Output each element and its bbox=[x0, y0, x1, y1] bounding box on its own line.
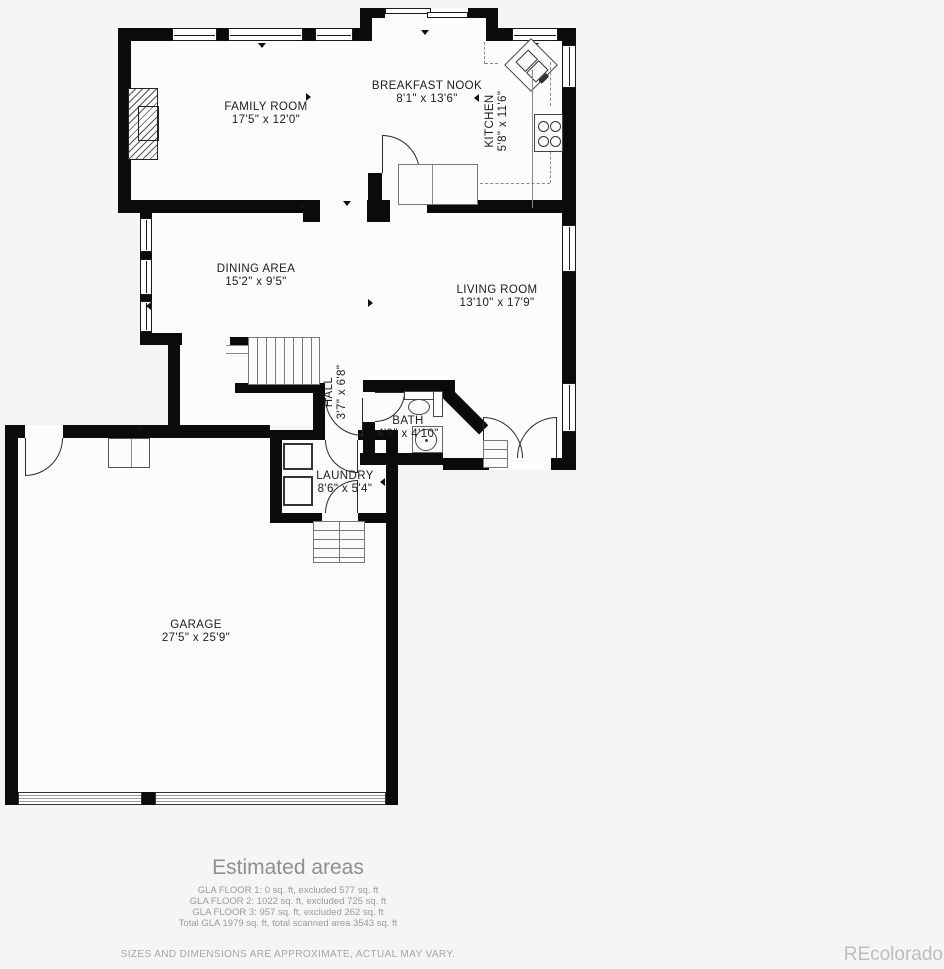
room-label-laundry: LAUNDRY 8'6" x 5'4" bbox=[316, 470, 374, 496]
window bbox=[140, 218, 152, 252]
burner bbox=[550, 136, 561, 147]
wall bbox=[118, 200, 303, 213]
wall bbox=[303, 28, 315, 41]
garage-door bbox=[18, 792, 142, 805]
wall bbox=[217, 28, 228, 41]
dimension-tick bbox=[306, 93, 311, 101]
fireplace bbox=[128, 88, 158, 160]
wall bbox=[372, 8, 385, 18]
front-entry-steps bbox=[483, 440, 508, 468]
dimension-tick bbox=[421, 30, 429, 35]
gla-total: Total GLA 1979 sq. ft, total scanned are… bbox=[38, 918, 538, 929]
wall bbox=[270, 438, 282, 523]
upper-cabinet-dashed bbox=[550, 62, 551, 106]
dimension-tick bbox=[146, 302, 151, 310]
fireplace-firebox bbox=[138, 106, 159, 141]
room-name: FAMILY ROOM bbox=[224, 101, 307, 114]
dimension-tick bbox=[343, 201, 351, 206]
counter-edge bbox=[532, 70, 533, 208]
room-name: HALL bbox=[323, 365, 336, 420]
room-label-bath: BATH 4'9" x 4'10" bbox=[377, 415, 438, 441]
room-label-dining-area: DINING AREA 15'2" x 9'5" bbox=[217, 263, 296, 289]
dimension-tick bbox=[299, 203, 307, 208]
room-label-living-room: LIVING ROOM 13'10" x 17'9" bbox=[456, 284, 537, 310]
wall bbox=[386, 790, 398, 805]
sliding-door-panel bbox=[427, 12, 468, 18]
garage-door bbox=[155, 792, 386, 805]
stairs bbox=[248, 337, 320, 385]
room-dims: 13'10" x 17'9" bbox=[456, 297, 537, 310]
window bbox=[562, 225, 576, 272]
room-name: KITCHEN bbox=[484, 91, 497, 152]
wall bbox=[386, 440, 398, 523]
room-dims: 3'7" x 6'8" bbox=[336, 365, 349, 420]
window bbox=[512, 28, 558, 41]
room-dims: 27'5" x 25'9" bbox=[162, 632, 230, 645]
garage-entry-steps bbox=[313, 521, 365, 563]
room-name: BREAKFAST NOOK bbox=[372, 80, 482, 93]
water-heater-divider bbox=[131, 439, 132, 467]
burner bbox=[538, 121, 549, 132]
upper-cabinet-dashed bbox=[480, 183, 550, 184]
door-opening bbox=[368, 135, 382, 173]
dimension-tick bbox=[136, 425, 144, 430]
room-dims: 17'5" x 12'0" bbox=[224, 114, 307, 127]
wall bbox=[360, 453, 443, 465]
wall bbox=[140, 252, 152, 259]
stove bbox=[534, 114, 563, 152]
floor-fill bbox=[372, 18, 486, 40]
stair-rail bbox=[226, 353, 248, 354]
window bbox=[562, 383, 576, 432]
room-name: DINING AREA bbox=[217, 263, 296, 276]
room-name: LIVING ROOM bbox=[456, 284, 537, 297]
recolorado-watermark: REcolorado bbox=[844, 944, 943, 966]
dimension-tick bbox=[380, 478, 385, 486]
burner bbox=[538, 136, 549, 147]
wall bbox=[5, 425, 18, 805]
wall bbox=[5, 790, 18, 805]
upper-cabinet-dashed bbox=[485, 63, 498, 64]
sliding-door-panel bbox=[385, 8, 431, 14]
wall bbox=[63, 425, 182, 438]
burner bbox=[550, 121, 561, 132]
wall bbox=[386, 523, 398, 805]
wall bbox=[360, 8, 372, 41]
room-dims: 4'9" x 4'10" bbox=[377, 428, 438, 441]
counter-divider bbox=[432, 165, 433, 204]
wall bbox=[270, 430, 325, 440]
toilet-bowl bbox=[408, 399, 430, 415]
wall bbox=[368, 173, 382, 205]
room-name: BATH bbox=[377, 415, 438, 428]
window bbox=[228, 28, 303, 41]
bath-shelf bbox=[433, 391, 443, 417]
estimated-areas-block: Estimated areas GLA FLOOR 1: 0 sq. ft, e… bbox=[38, 856, 538, 960]
room-label-hall: HALL 3'7" x 6'8" bbox=[323, 365, 349, 420]
size-disclaimer: SIZES AND DIMENSIONS ARE APPROXIMATE, AC… bbox=[38, 949, 538, 960]
dimension-tick bbox=[368, 299, 373, 307]
room-dims: 5'8" x 11'6" bbox=[497, 91, 510, 152]
upper-cabinet-dashed bbox=[484, 42, 485, 64]
window bbox=[140, 259, 152, 295]
washer bbox=[283, 443, 313, 470]
stair-rail bbox=[226, 345, 248, 346]
window bbox=[315, 28, 353, 41]
door-opening bbox=[25, 425, 63, 438]
window bbox=[172, 28, 217, 41]
room-name: LAUNDRY bbox=[316, 470, 374, 483]
room-dims: 8'1" x 13'6" bbox=[372, 93, 482, 106]
estimated-areas-title: Estimated areas bbox=[38, 856, 538, 880]
wall bbox=[486, 28, 512, 41]
room-label-kitchen: KITCHEN 5'8" x 11'6" bbox=[484, 91, 510, 152]
wall bbox=[180, 425, 270, 438]
gla-floor-3: GLA FLOOR 3: 957 sq. ft, excluded 262 sq… bbox=[38, 907, 538, 918]
door-opening bbox=[363, 392, 375, 422]
water-heater bbox=[108, 438, 150, 468]
gla-floor-1: GLA FLOOR 1: 0 sq. ft, excluded 577 sq. … bbox=[38, 885, 538, 896]
wall bbox=[562, 272, 576, 383]
gla-floor-2: GLA FLOOR 2: 1022 sq. ft, excluded 725 s… bbox=[38, 896, 538, 907]
floor-plan: FAMILY ROOM 17'5" x 12'0" BREAKFAST NOOK… bbox=[0, 0, 944, 969]
dimension-tick bbox=[258, 43, 266, 48]
room-dims: 15'2" x 9'5" bbox=[217, 276, 296, 289]
room-label-garage: GARAGE 27'5" x 25'9" bbox=[162, 619, 230, 645]
room-label-family-room: FAMILY ROOM 17'5" x 12'0" bbox=[224, 101, 307, 127]
upper-cabinet-dashed bbox=[550, 152, 551, 183]
dryer bbox=[283, 476, 313, 506]
kitchen-counter bbox=[398, 164, 478, 205]
wall bbox=[142, 792, 155, 805]
room-label-breakfast-nook: BREAKFAST NOOK 8'1" x 13'6" bbox=[372, 80, 482, 106]
room-name: GARAGE bbox=[162, 619, 230, 632]
wall bbox=[168, 345, 180, 428]
room-dims: 8'6" x 5'4" bbox=[316, 483, 374, 496]
window bbox=[562, 45, 576, 88]
wall bbox=[140, 333, 182, 345]
wall bbox=[562, 28, 576, 45]
